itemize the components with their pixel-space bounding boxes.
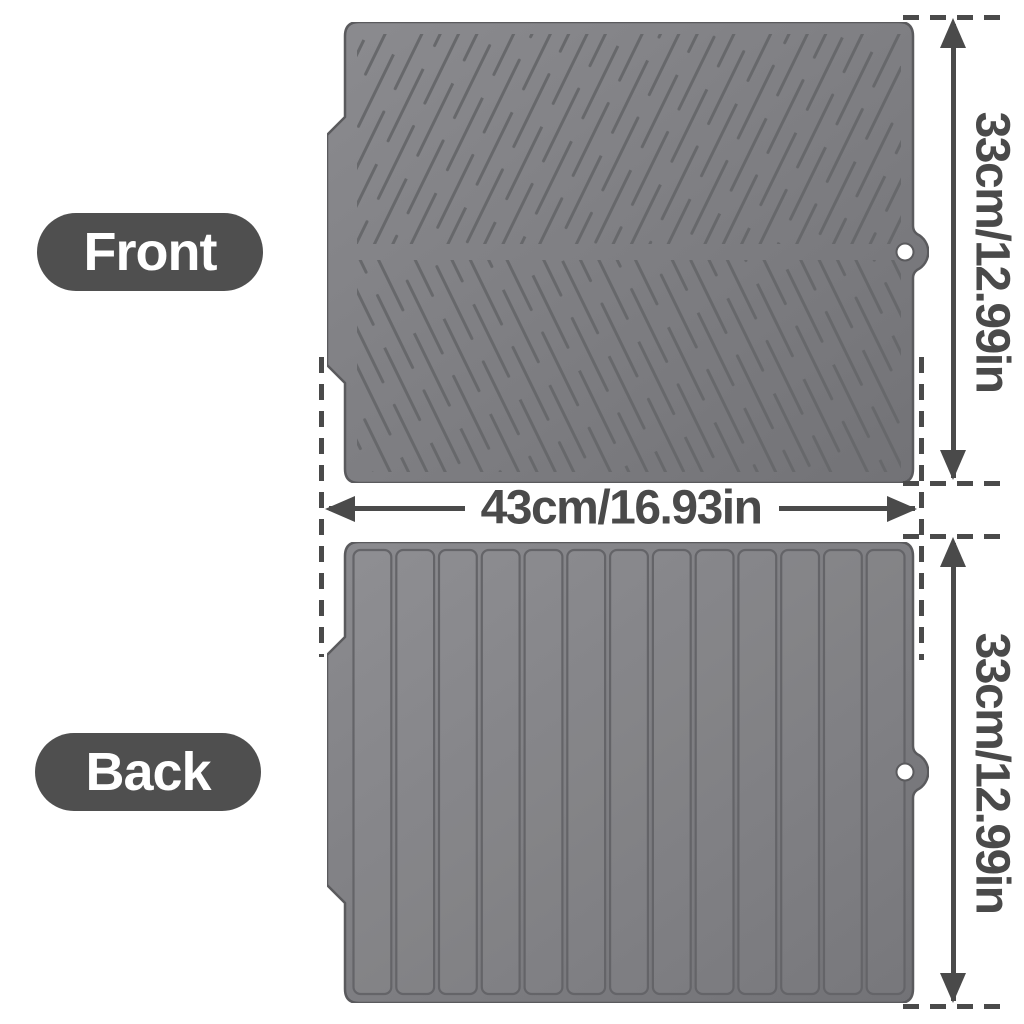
front-mat	[327, 22, 929, 483]
width-ext-left	[319, 357, 324, 657]
back-mat-panel	[354, 550, 392, 994]
back-mat-panel	[525, 550, 563, 994]
front-height-label: 33cm/12.99in	[965, 112, 1020, 393]
back-mat-panel	[696, 550, 734, 994]
front-height-ext-bottom	[903, 481, 1000, 486]
product-dimension-diagram: Front Back	[0, 0, 1024, 1024]
arrow-up-icon	[940, 537, 966, 567]
back-mat-panel	[824, 550, 862, 994]
back-label-pill: Back	[35, 733, 261, 811]
front-height-line	[951, 24, 956, 478]
front-label-pill: Front	[37, 213, 263, 291]
back-mat-panel	[482, 550, 520, 994]
arrow-down-icon	[940, 973, 966, 1003]
back-mat-hang-hole-icon	[897, 764, 914, 781]
back-height-label: 33cm/12.99in	[965, 633, 1020, 914]
back-height-ext-bottom	[903, 1004, 1000, 1009]
back-mat-panel	[781, 550, 819, 994]
front-mat-herringbone-bottom	[357, 260, 901, 472]
back-height-line	[951, 543, 956, 1001]
arrow-down-icon	[940, 450, 966, 480]
back-mat-panel	[610, 550, 648, 994]
back-mat-panel	[567, 550, 605, 994]
front-mat-hang-hole-icon	[897, 244, 914, 261]
front-mat-herringbone-top	[357, 34, 901, 244]
front-label: Front	[84, 221, 217, 283]
width-label: 43cm/16.93in	[481, 481, 762, 536]
width-ext-right	[919, 357, 924, 660]
arrow-left-icon	[325, 496, 355, 522]
back-mat-panel	[439, 550, 477, 994]
arrow-right-icon	[887, 496, 917, 522]
back-mat-panel	[738, 550, 776, 994]
arrow-up-icon	[940, 18, 966, 48]
back-mat-panel	[396, 550, 434, 994]
back-mat	[327, 542, 929, 1003]
back-mat-panel	[653, 550, 691, 994]
back-label: Back	[85, 741, 210, 803]
